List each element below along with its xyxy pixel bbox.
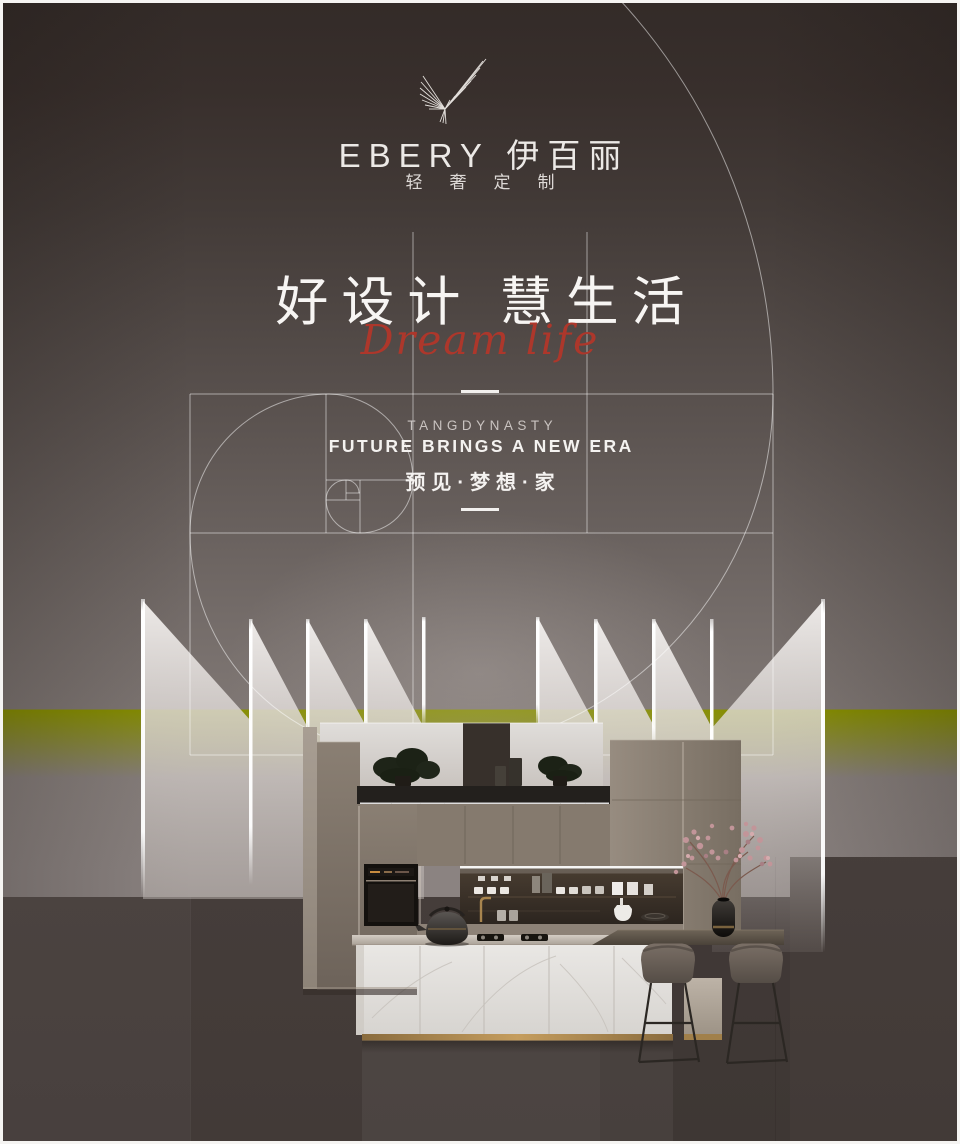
light-wall: [143, 601, 251, 899]
light-blade-line: [821, 599, 825, 952]
kitchen-scene: [303, 723, 787, 1063]
light-blade-line: [141, 599, 145, 897]
brand-tagline: 轻奢定制: [0, 168, 960, 193]
poster: EBERY 伊百丽 轻奢定制 好设计 慧生活 Dream life TANGDY…: [0, 0, 960, 1144]
light-wall: [251, 620, 308, 899]
feature-kicker: TANGDYNASTY: [0, 418, 960, 433]
light-blade-line: [422, 617, 426, 729]
wing-logo-icon: [415, 54, 545, 124]
feature-dash-bottom: [461, 508, 499, 511]
feature-title: FUTURE BRINGS A NEW ERA: [0, 436, 960, 457]
brand-logo: [0, 54, 960, 129]
range-hood-shelf: [357, 786, 612, 805]
built-in-oven: [364, 864, 418, 926]
bar-stool: [727, 944, 787, 1064]
open-shelf-niche: [460, 866, 683, 924]
gold-toe-kick: [362, 1034, 673, 1041]
light-blade-line: [249, 619, 253, 885]
light-blade-line: [536, 617, 540, 729]
feature-subtitle: 预见·梦想·家: [0, 466, 960, 495]
light-blade-line: [652, 619, 656, 757]
hero-script-text: Dream life: [0, 316, 960, 364]
feature-dash-top: [461, 390, 499, 393]
left-tall-cabinets: [303, 727, 360, 990]
